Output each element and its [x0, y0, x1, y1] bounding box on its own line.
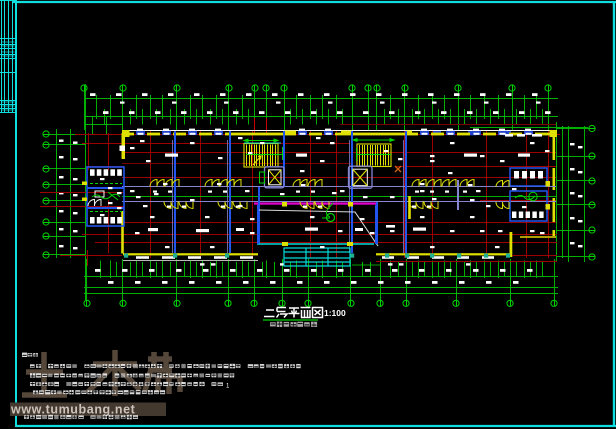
svg-text:www.tumubang.net: www.tumubang.net [10, 403, 136, 417]
svg-text:1:100: 1:100 [324, 308, 346, 318]
